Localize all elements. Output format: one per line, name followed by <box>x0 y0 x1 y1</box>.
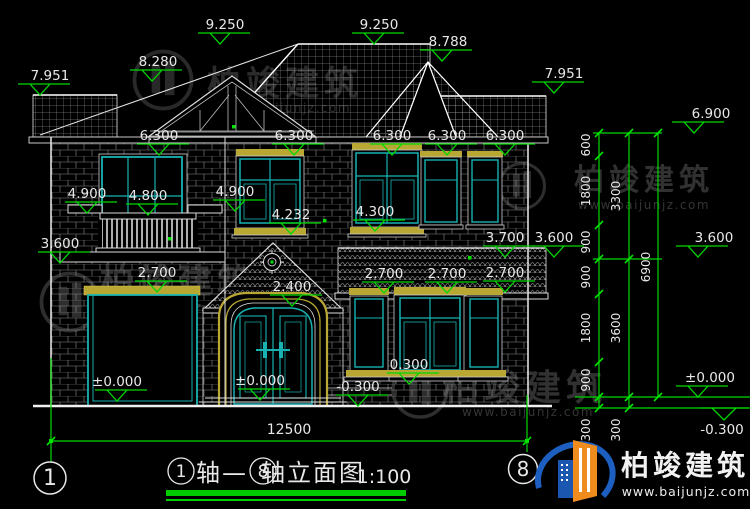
title-underline-thick <box>166 490 406 496</box>
level-label: ±0.000 <box>685 370 735 386</box>
level-label: -0.300 <box>336 379 380 395</box>
axis-number: 1 <box>43 466 57 491</box>
title-axis-prefix: 轴— <box>196 459 248 487</box>
floor-slab-band <box>60 252 225 262</box>
overall-width-label: 12500 <box>267 422 312 438</box>
level-label: ±0.000 <box>92 374 142 390</box>
level-label: 2.700 <box>428 266 467 282</box>
title-underline-thin <box>166 499 406 501</box>
title-axis-first: 1 <box>176 462 187 482</box>
chain-dim: 900 <box>579 266 593 289</box>
chain-dim: 3600 <box>609 313 623 344</box>
drawing-scale: 1:100 <box>357 466 412 488</box>
cad-elevation-drawing: 柏竣建筑 www.baijunjz.com 柏竣建筑 www.baijunjz.… <box>0 0 750 509</box>
level-label: 7.951 <box>31 68 70 84</box>
window-2f-bay-left <box>419 151 463 229</box>
axis-bubble-1: 1 <box>34 462 66 494</box>
drawing-title: 轴立面图 <box>261 459 365 487</box>
chain-dim: 3300 <box>609 181 623 212</box>
left-eave-roof <box>33 95 117 137</box>
level-label: 2.700 <box>365 266 404 282</box>
chain-dim: 1800 <box>579 313 593 344</box>
window-2f-right <box>348 143 426 237</box>
chain-dim: 300 <box>579 419 593 442</box>
level-label: 8.280 <box>139 54 178 70</box>
eave-board-left <box>29 137 149 143</box>
watermark-url: www.baijunjz.com <box>578 198 710 212</box>
level-label: 6.300 <box>140 128 179 144</box>
level-label: 7.951 <box>545 66 584 82</box>
axis-bubble-8: 8 <box>509 455 538 484</box>
level-label: 2.700 <box>486 265 525 281</box>
level-label: 4.900 <box>216 184 255 200</box>
balcony-handrail <box>100 213 196 219</box>
level-label: ±0.000 <box>235 373 285 389</box>
level-label: 4.232 <box>272 207 311 223</box>
chain-dim: 6900 <box>639 252 653 283</box>
level-label: 2.700 <box>138 265 177 281</box>
level-label: 9.250 <box>206 17 245 33</box>
level-label: 4.800 <box>129 188 168 204</box>
level-label: 3.700 <box>486 230 525 246</box>
level-label: 4.300 <box>356 204 395 220</box>
chain-dim: 1800 <box>579 176 593 207</box>
chain-dim: 300 <box>609 419 623 442</box>
chain-dim: 900 <box>579 369 593 392</box>
axis-number: 8 <box>517 457 530 481</box>
elevation-canvas: 柏竣建筑 www.baijunjz.com 柏竣建筑 www.baijunjz.… <box>0 0 750 509</box>
chain-dim: 900 <box>579 231 593 254</box>
level-label: 3.600 <box>695 230 734 246</box>
level-label: 4.900 <box>68 186 107 202</box>
level-label: 6.300 <box>373 128 412 144</box>
window-2f-left <box>99 154 187 218</box>
level-label: 0.300 <box>390 357 429 373</box>
window-gf-bay-right <box>458 288 508 381</box>
level-label: 6.300 <box>486 128 525 144</box>
watermark-name: 柏竣建筑 <box>574 163 714 198</box>
chain-dim: 600 <box>579 134 593 157</box>
balcony-balusters <box>102 219 194 248</box>
brand-name: 柏竣建筑 <box>621 449 749 482</box>
level-label: 8.788 <box>429 34 468 50</box>
window-gf-bay-left <box>344 288 394 381</box>
level-label: 6.300 <box>428 128 467 144</box>
level-label: 2.400 <box>273 279 312 295</box>
window-2f-bay-right <box>466 151 504 229</box>
brand-url: www.baijunjz.com <box>622 484 750 499</box>
level-label: -0.300 <box>700 422 744 438</box>
level-label: 3.600 <box>535 230 574 246</box>
level-label: 9.250 <box>360 17 399 33</box>
level-label: 6.900 <box>692 106 731 122</box>
level-label: 3.600 <box>41 236 80 252</box>
level-label: 6.300 <box>275 128 314 144</box>
